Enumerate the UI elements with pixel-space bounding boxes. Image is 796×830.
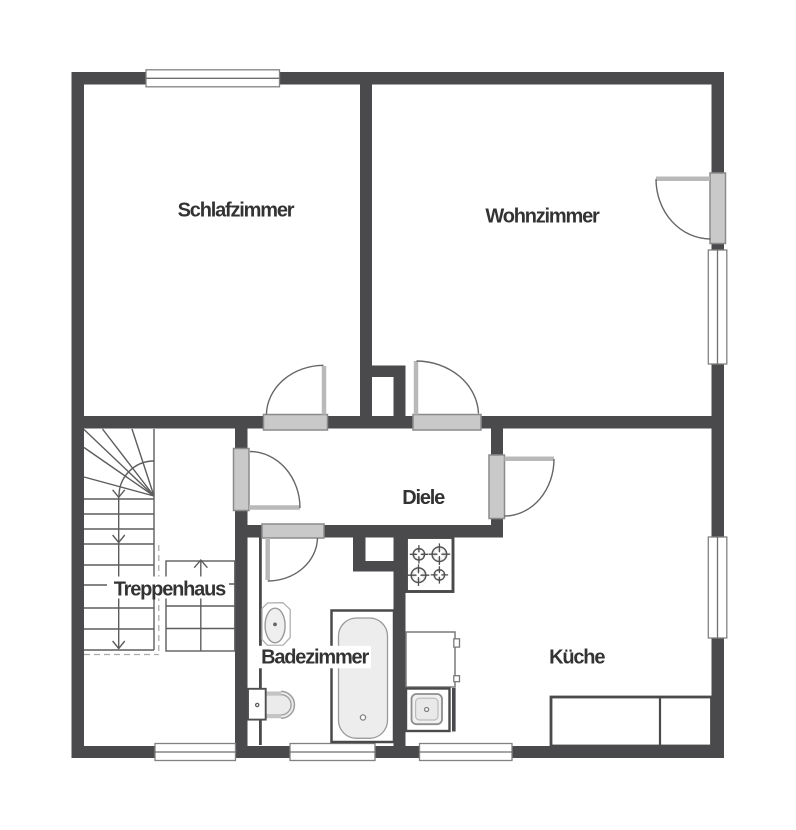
- svg-text:Schlafzimmer: Schlafzimmer: [178, 199, 295, 221]
- svg-text:Küche: Küche: [549, 647, 605, 669]
- svg-text:Diele: Diele: [402, 487, 445, 509]
- svg-text:Treppenhaus: Treppenhaus: [114, 578, 226, 600]
- svg-text:Badezimmer: Badezimmer: [261, 647, 369, 669]
- svg-text:Wohnzimmer: Wohnzimmer: [485, 205, 600, 227]
